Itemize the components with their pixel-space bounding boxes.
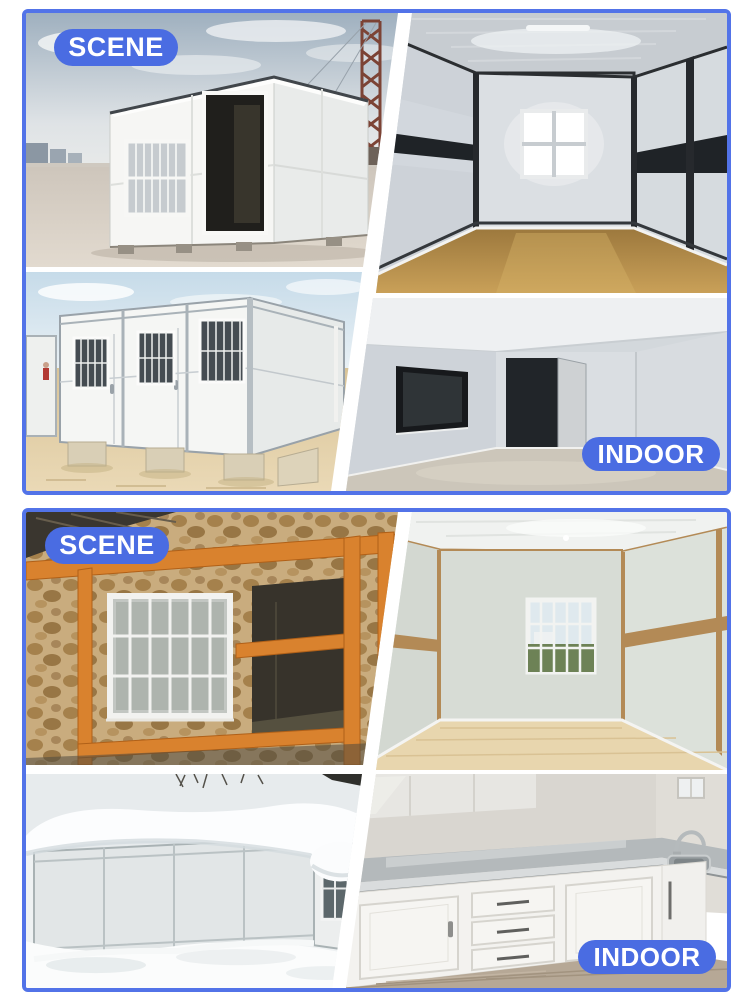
photo-snow-covered-container [26, 774, 362, 988]
scene-badge-2: SCENE [45, 527, 169, 564]
photo-steel-frame-interior [376, 13, 727, 293]
bright-window [504, 102, 604, 186]
collage-section-white-container: SCENE INDOOR [22, 9, 731, 495]
collage-section-wood-container: SCENE INDOOR [22, 508, 731, 992]
indoor-badge-2: INDOOR [578, 940, 716, 974]
scene-badge-1: SCENE [54, 29, 178, 66]
barred-window [126, 141, 188, 215]
container-row-exterior-image [26, 272, 362, 491]
photo-container-row-exterior [26, 272, 362, 491]
indoor-badge-1: INDOOR [582, 437, 720, 471]
steel-frame-interior-image [376, 13, 727, 293]
barred-window [528, 600, 594, 672]
door-opening [204, 93, 266, 233]
white-grille-window [106, 596, 234, 720]
wood-trim-interior-image [376, 512, 727, 770]
snow-covered-container-image [26, 774, 362, 988]
photo-wood-trim-interior [376, 512, 727, 770]
